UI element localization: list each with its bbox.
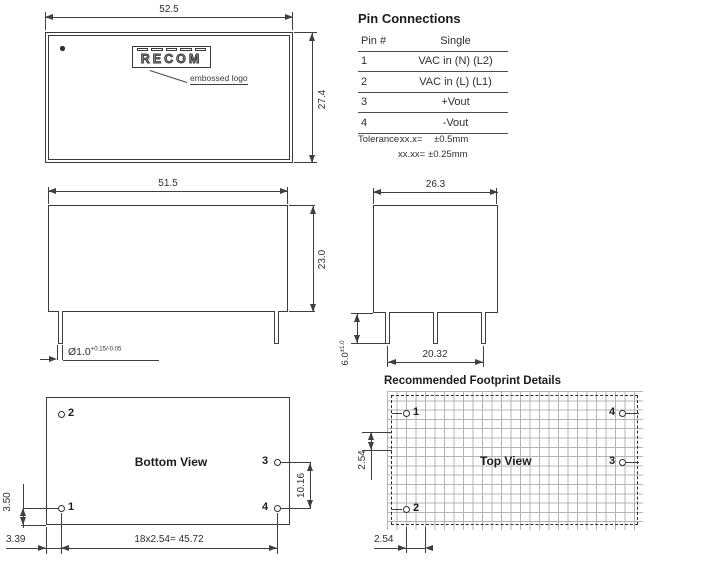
- footprint-pin-number-4: 4: [609, 406, 615, 418]
- dim-arrow: [354, 335, 360, 343]
- package-outline-side: [48, 205, 288, 312]
- footprint-top-view-label: Top View: [480, 454, 532, 468]
- dim-pin-diameter: Ø1.0+0.15/-0.05: [68, 346, 121, 358]
- dim-pin-span: 20.32: [387, 349, 483, 361]
- recom-logo-box: RECOM: [132, 46, 211, 68]
- table-row: 2 VAC in (L) (L1): [358, 72, 508, 93]
- ext-line: [277, 513, 278, 554]
- pin-number-1: 1: [68, 501, 74, 513]
- col-header-pin: Pin #: [358, 35, 403, 47]
- dim-pin-side-offset: 3.39: [6, 534, 25, 546]
- dim-line: [45, 17, 293, 18]
- dim-out-pin-span: 10.16: [296, 462, 308, 509]
- dim-line: [61, 548, 277, 549]
- dim-arrow: [61, 545, 69, 551]
- dim-pin-row-span: 18x2.54= 45.72: [61, 534, 277, 546]
- mechanical-drawing-page: 52.5 RECOM embossed logo 27.4 Pin Connec…: [0, 0, 720, 563]
- dim-grid-pitch-horizontal: 2.54: [374, 534, 393, 546]
- dim-front-width: 26.3: [373, 179, 498, 191]
- pin-lead: [274, 311, 279, 344]
- pin-pad-4: [274, 505, 281, 512]
- dim-line: [48, 191, 288, 192]
- tolerance-value-1: ±0.5mm: [434, 134, 468, 145]
- ext-line: [21, 525, 46, 526]
- tolerance-label: Tolerance:: [358, 134, 402, 145]
- pin-connections-title: Pin Connections: [358, 11, 461, 26]
- leader-line: [392, 413, 402, 414]
- table-row: 4 -Vout: [358, 113, 508, 134]
- col-header-single: Single: [403, 35, 508, 47]
- ext-line: [406, 527, 407, 553]
- pin-pad-2: [58, 411, 65, 418]
- leader-line: [23, 508, 58, 509]
- table-row: 3 +Vout: [358, 93, 508, 114]
- bottom-view-label: Bottom View: [111, 455, 231, 469]
- ext-line: [57, 345, 58, 360]
- dim-underline: [63, 360, 159, 361]
- pin-lead: [433, 312, 438, 344]
- dim-top-height: 27.4: [317, 34, 329, 165]
- dim-arrow: [307, 500, 313, 508]
- footprint-pad-3: [619, 459, 626, 466]
- leader-line: [626, 462, 639, 463]
- dim-arrow: [269, 545, 277, 551]
- pin-number-3: 3: [262, 455, 268, 467]
- table-row: 1 VAC in (N) (L2): [358, 52, 508, 73]
- dim-arrow: [38, 545, 46, 551]
- footprint-pad-2: [403, 506, 410, 513]
- footprint-pin-number-2: 2: [413, 502, 419, 514]
- dim-side-height: 23.0: [317, 206, 329, 313]
- dim-line: [6, 548, 61, 549]
- dim-arrow: [20, 508, 26, 516]
- tolerance-value-2: ±0.25mm: [428, 149, 468, 160]
- tolerance-format-2: xx.xx=: [398, 149, 425, 160]
- dim-arrow: [310, 206, 316, 214]
- dim-arrow: [307, 463, 313, 471]
- logo-flags: [137, 48, 206, 51]
- dim-line: [40, 359, 49, 360]
- dim-arrow: [368, 442, 374, 450]
- dim-line: [312, 32, 313, 163]
- dim-pin-length: 6.0±1.0: [340, 314, 352, 392]
- dim-line: [313, 205, 314, 312]
- dim-arrow: [368, 432, 374, 440]
- table-header-row: Pin # Single: [358, 31, 508, 52]
- ext-line: [362, 432, 392, 433]
- ext-line: [351, 343, 387, 344]
- pin-diameter-tolerance: +0.15/-0.05: [91, 347, 122, 353]
- dim-arrow: [309, 33, 315, 41]
- pin-number-2: 2: [68, 407, 74, 419]
- dim-arrow: [398, 545, 406, 551]
- footprint-pin-number-3: 3: [609, 455, 615, 467]
- dim-arrow: [425, 545, 433, 551]
- pin-length-tolerance: ±1.0: [340, 341, 346, 353]
- footprint-pin-number-1: 1: [413, 406, 419, 418]
- dim-arrow: [20, 517, 26, 525]
- dim-grid-pitch-vertical: 2.54: [357, 434, 369, 486]
- tolerance-format-1: xx.x=: [400, 134, 422, 145]
- pin-pad-1: [58, 505, 65, 512]
- pin1-marker-dot: [60, 46, 65, 51]
- footprint-pad-4: [619, 410, 626, 417]
- dim-line: [373, 192, 498, 193]
- pin-connections-table: Pin # Single 1 VAC in (N) (L2) 2 VAC in …: [358, 31, 508, 134]
- dim-arrow: [310, 304, 316, 312]
- pin-lead: [481, 312, 486, 344]
- dim-line: [387, 362, 483, 363]
- dim-side-width: 51.5: [48, 178, 288, 190]
- recom-logo-text: RECOM: [133, 52, 210, 66]
- pin-pad-3: [274, 459, 281, 466]
- dim-pin-edge-offset: 3.50: [2, 477, 14, 527]
- embossed-logo-note: embossed logo: [190, 73, 248, 85]
- pin-lead: [58, 311, 63, 344]
- ext-line: [46, 527, 47, 554]
- dim-arrow: [354, 314, 360, 322]
- dim-arrow: [309, 155, 315, 163]
- leader-line: [626, 413, 639, 414]
- package-outline-front: [373, 205, 498, 313]
- dim-arrow: [49, 356, 57, 362]
- ext-line: [62, 345, 63, 360]
- leader-line: [392, 509, 402, 510]
- pin-lead: [385, 312, 390, 344]
- pin-number-4: 4: [262, 501, 268, 513]
- footprint-pad-1: [403, 410, 410, 417]
- footprint-title: Recommended Footprint Details: [384, 375, 561, 387]
- ext-line: [483, 346, 484, 367]
- dim-top-width: 52.5: [45, 4, 293, 16]
